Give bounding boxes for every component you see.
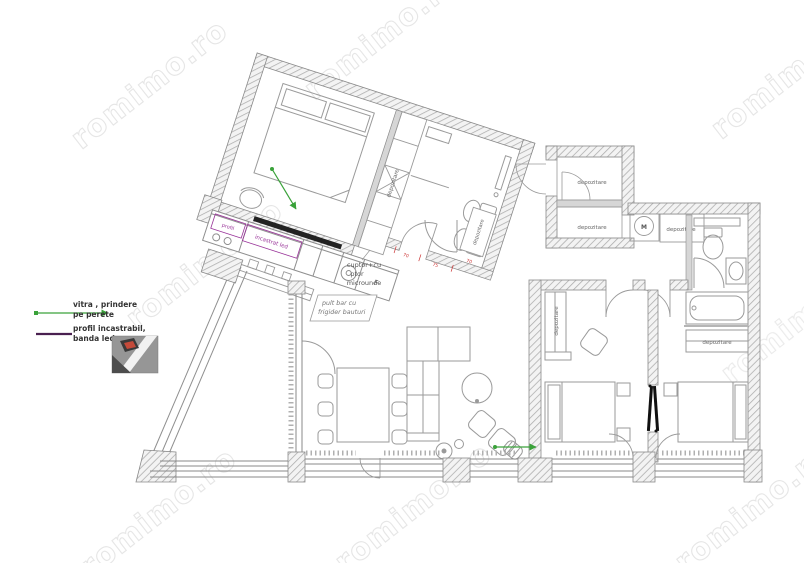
watermark: romimo.ro xyxy=(668,436,804,563)
bathroom-2 xyxy=(684,218,748,326)
bar-label-line1: pult bar cu xyxy=(321,299,356,307)
wall-pillar xyxy=(633,452,655,482)
dim-label: 70 xyxy=(402,252,409,260)
wall-right-outer xyxy=(748,203,760,482)
wall xyxy=(540,280,606,290)
bath-door xyxy=(402,215,437,250)
bath-shelf xyxy=(694,218,740,226)
chair xyxy=(318,374,333,388)
chair xyxy=(318,430,333,444)
legend-vitra-text1: vitra , prindere xyxy=(73,300,137,309)
wall xyxy=(546,146,634,157)
wall-pillar xyxy=(518,458,552,482)
legend-profil-text1: profil incastrabil, xyxy=(73,324,146,333)
nightstand xyxy=(664,383,677,396)
wall xyxy=(670,280,688,290)
wall-divider xyxy=(557,200,622,207)
watermark: romimo.ro xyxy=(298,0,469,107)
bar-label-line2: frigider bauturi xyxy=(318,308,366,316)
wall xyxy=(529,280,541,462)
connecting-door-leaves xyxy=(647,385,659,433)
floor-plan-drawing: romimo.ro romimo.ro romimo.ro romimo.ro … xyxy=(0,0,804,563)
floor-plan-page: romimo.ro romimo.ro romimo.ro romimo.ro … xyxy=(0,0,804,563)
storage-1-label: depozitare xyxy=(577,180,607,186)
legend-profil-text2: banda led xyxy=(73,334,115,343)
pillow xyxy=(325,103,370,132)
bath-shelf xyxy=(426,127,452,144)
legend-vitra-text2: pe perete xyxy=(73,310,114,319)
dining-table xyxy=(337,368,389,442)
nightstand xyxy=(617,383,630,396)
wall xyxy=(546,146,557,160)
round-rug xyxy=(462,373,492,403)
toilet-tank xyxy=(704,228,722,237)
chair xyxy=(392,430,407,444)
terrace-exit-door xyxy=(360,458,380,478)
wall-pillar xyxy=(288,452,305,482)
armchair xyxy=(467,409,498,440)
shelf xyxy=(545,352,571,360)
pillow xyxy=(548,385,560,439)
toilet xyxy=(703,235,723,259)
wall xyxy=(633,280,645,290)
bedroom-a-wardrobe-label: depozitare xyxy=(554,306,560,336)
wall-pillar xyxy=(744,450,762,482)
wall xyxy=(648,290,658,385)
wall xyxy=(628,203,760,214)
watermark: romimo.ro xyxy=(64,13,235,157)
washer-icon-letter: M xyxy=(641,224,647,231)
living-room xyxy=(302,327,524,461)
faucet xyxy=(692,306,696,310)
chair xyxy=(392,402,407,416)
watermark: romimo.ro xyxy=(704,3,804,147)
utility-zone: M depozitare xyxy=(630,212,704,242)
oven-label-line2: ptor xyxy=(350,270,364,278)
wall xyxy=(546,238,634,248)
small-table xyxy=(455,440,464,449)
terrace-door-arc xyxy=(302,341,335,374)
armchair xyxy=(579,327,610,358)
storage-room-2 xyxy=(557,207,622,238)
bedroom-doors xyxy=(606,290,670,317)
wall-divider xyxy=(686,215,692,290)
pillow xyxy=(735,385,746,439)
chair xyxy=(392,374,407,388)
window-band-left xyxy=(288,281,305,455)
sink xyxy=(729,262,743,280)
wall-left xyxy=(208,53,268,209)
oven-label-line3: microunde xyxy=(347,279,382,287)
bar-label: pult bar cu frigider bauturi xyxy=(310,295,377,321)
wall-bath-bottom xyxy=(386,238,402,251)
wall-right xyxy=(480,139,535,276)
chair xyxy=(318,402,333,416)
storage-block: depozitare depozitare xyxy=(516,146,634,248)
rotated-wing: depozitare 70 75 70 xyxy=(191,51,535,329)
bedroom-b-wardrobe-label: depozitare xyxy=(702,340,732,346)
oven-label-line1: cuptor+cu xyxy=(347,261,381,269)
sofa-armrest xyxy=(407,433,439,441)
bed-double xyxy=(545,382,615,442)
legend-photo xyxy=(112,336,158,373)
storage-2-label: depozitare xyxy=(577,225,607,231)
wall-pillar xyxy=(443,458,470,482)
bathtub-inner xyxy=(690,296,744,320)
bed-double xyxy=(678,382,748,442)
